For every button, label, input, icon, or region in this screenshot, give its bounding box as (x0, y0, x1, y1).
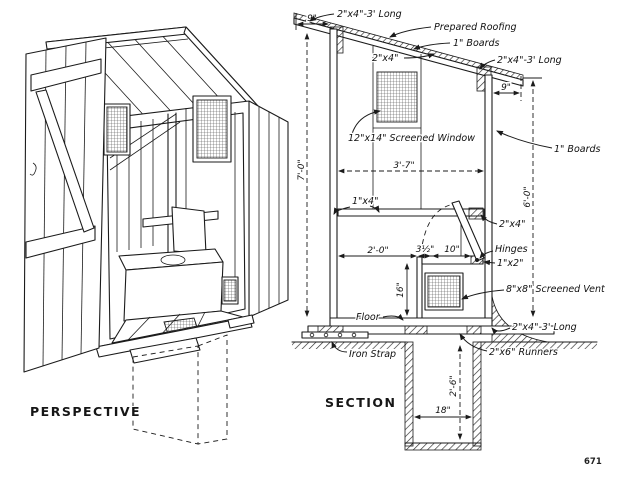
label-iron-strap: Iron Strap (349, 349, 396, 360)
label-roof-boards: 1" Boards (453, 38, 500, 49)
dim-seat-height: 16" (396, 282, 406, 298)
dim-rear-wall-height: 6'-0" (523, 186, 533, 207)
dim-seat-gap: 3½" (416, 245, 435, 255)
label-roof-stringer-right: 2"x4"-3' Long (497, 55, 562, 66)
perspective-view: PERSPECTIVE (24, 27, 288, 444)
section-earth-mound (492, 296, 548, 342)
perspective-side-wall (249, 101, 288, 317)
label-wall-boards: 1" Boards (554, 144, 601, 155)
label-screened-window: 12"x14" Screened Window (348, 133, 475, 144)
label-runners-2x6: 2"x6" Runners (489, 347, 558, 358)
perspective-wall-vent-screen (224, 280, 236, 301)
dim-seat-top-depth: 10" (444, 245, 460, 255)
label-screened-vent: 8"x8" Screened Vent (506, 284, 606, 295)
page-number: 671 (584, 457, 602, 467)
section-pit (405, 342, 481, 450)
label-roof-stringer-top: 2"x4"-3' Long (337, 9, 402, 20)
label-floor: Floor (356, 312, 381, 323)
label-prepared-roofing: Prepared Roofing (434, 22, 517, 33)
label-sill-2x4: 2"x4"-3' Long (512, 322, 577, 333)
scanned-plan-page: PERSPECTIVE (0, 0, 618, 477)
perspective-seat-lid (172, 207, 206, 254)
perspective-side-window-screen (197, 100, 227, 158)
section-vent (425, 273, 463, 310)
dim-pit-depth: 2'-6" (449, 375, 459, 396)
dim-seat-setback: 2'-0" (367, 246, 388, 256)
dim-pit-width: 18" (435, 406, 451, 416)
label-seat-trim-1x2: 1"x2" (497, 258, 523, 269)
section-window (373, 46, 421, 210)
outhouse-plan-figure: PERSPECTIVE (0, 0, 618, 477)
perspective-door (24, 38, 106, 372)
section-view: 9" 7'-0" 3'-7" 9" 6'-0" 2'-0" 3½" 10" 16… (292, 9, 606, 450)
dim-right-overhang: 9" (501, 83, 511, 93)
section-right-wall (485, 75, 492, 318)
perspective-back-window-screen (107, 107, 127, 152)
section-seat-riser (417, 257, 422, 318)
dim-interior-width: 3'-7" (393, 161, 414, 171)
label-rafter-2x4: 2"x4" (372, 53, 398, 64)
section-iron-strap (302, 332, 368, 338)
dim-left-overhang: 9" (307, 14, 317, 24)
dim-front-wall-height: 7'-0" (297, 159, 307, 180)
label-hinges: Hinges (495, 244, 528, 255)
label-rail-1x4: 1"x4" (352, 196, 378, 207)
section-left-wall (330, 29, 337, 318)
section-title: SECTION (325, 395, 396, 410)
section-floor (330, 318, 492, 326)
label-plate-2x4: 2"x4" (499, 219, 525, 230)
perspective-title: PERSPECTIVE (30, 404, 141, 419)
section-hinge-point (475, 258, 479, 262)
